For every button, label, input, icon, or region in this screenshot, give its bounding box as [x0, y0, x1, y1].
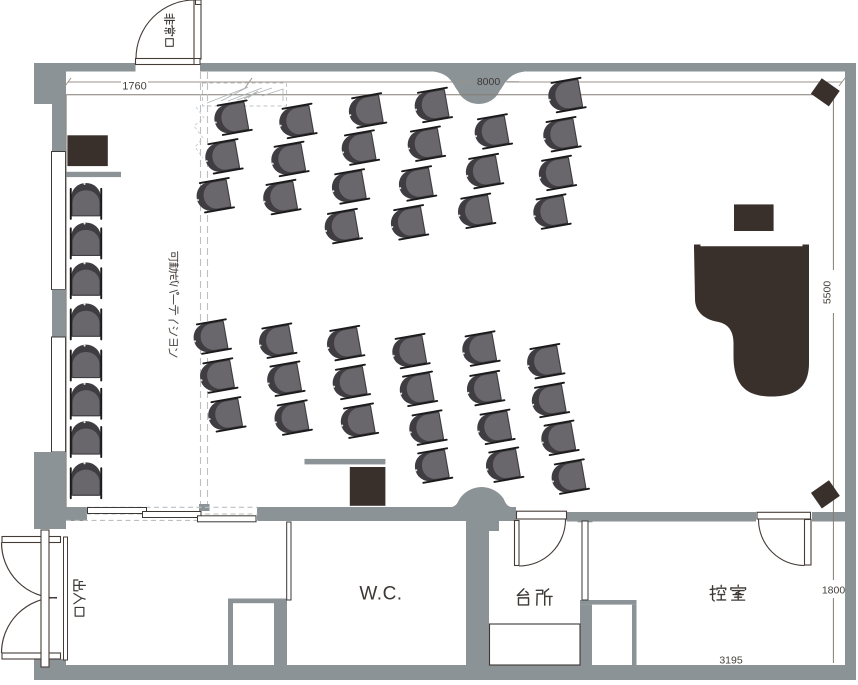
svg-text:1760: 1760 [122, 81, 146, 93]
svg-text:8000: 8000 [477, 76, 501, 88]
svg-text:W.C.: W.C. [359, 584, 402, 605]
svg-text:1800: 1800 [822, 585, 846, 597]
svg-text:3195: 3195 [719, 655, 743, 667]
svg-text:5500: 5500 [822, 281, 834, 305]
